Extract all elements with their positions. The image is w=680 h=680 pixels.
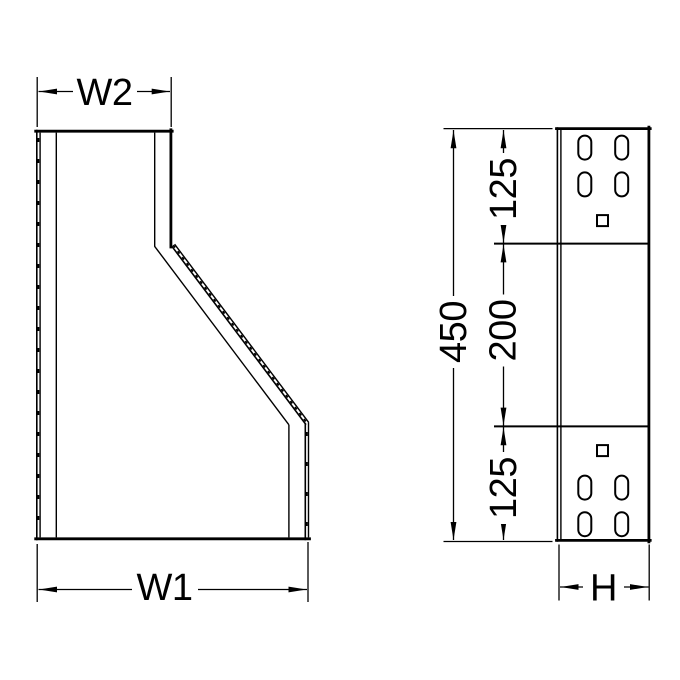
seg-arrow: [501, 225, 507, 243]
square-hole: [597, 215, 608, 226]
seg-arrow: [501, 130, 507, 148]
slot-hole: [578, 136, 591, 160]
plan-diagonal-flange-line: [155, 246, 289, 424]
seg-bot-label: 125: [483, 457, 525, 519]
dimension-segments: 125 200 125: [483, 130, 526, 540]
w2-label: W2: [77, 72, 133, 114]
h-arrow-left: [561, 584, 579, 590]
w2-arrow-right: [152, 89, 170, 95]
dimension-w1: W1: [37, 542, 308, 609]
slot-hole: [578, 512, 591, 536]
total-height-label: 450: [433, 301, 475, 363]
plan-diagonal-ticks: [173, 245, 307, 423]
plan-diagonal-outer: [172, 246, 306, 424]
plan-diagonal-outer2: [175, 244, 309, 422]
slot-hole: [615, 512, 628, 536]
plan-view: [36, 130, 310, 540]
w1-arrow-left: [39, 587, 57, 593]
seg-arrow: [501, 522, 507, 540]
side-bottom-section-holes: [578, 445, 628, 536]
h-arrow-right: [630, 584, 648, 590]
side-top-section-holes: [578, 136, 628, 227]
seg-mid-label: 200: [483, 300, 525, 362]
total-height-arrow-bottom: [451, 522, 457, 540]
slot-hole: [615, 476, 628, 500]
seg-arrow: [501, 408, 507, 426]
square-hole: [597, 445, 608, 456]
slot-hole: [578, 476, 591, 500]
w1-label: W1: [137, 567, 193, 609]
dimension-w2: W2: [37, 72, 171, 127]
seg-top-label: 125: [483, 158, 525, 220]
slot-hole: [578, 172, 591, 196]
w1-arrow-right: [289, 587, 307, 593]
w2-arrow-left: [39, 89, 57, 95]
h-label: H: [590, 568, 617, 610]
seg-arrow: [501, 244, 507, 262]
dimension-h: H: [559, 545, 649, 610]
total-height-arrow-top: [451, 130, 457, 148]
technical-drawing-canvas: W2 W1: [0, 0, 680, 680]
slot-hole: [615, 136, 628, 160]
seg-arrow: [501, 427, 507, 445]
slot-hole: [615, 172, 628, 196]
